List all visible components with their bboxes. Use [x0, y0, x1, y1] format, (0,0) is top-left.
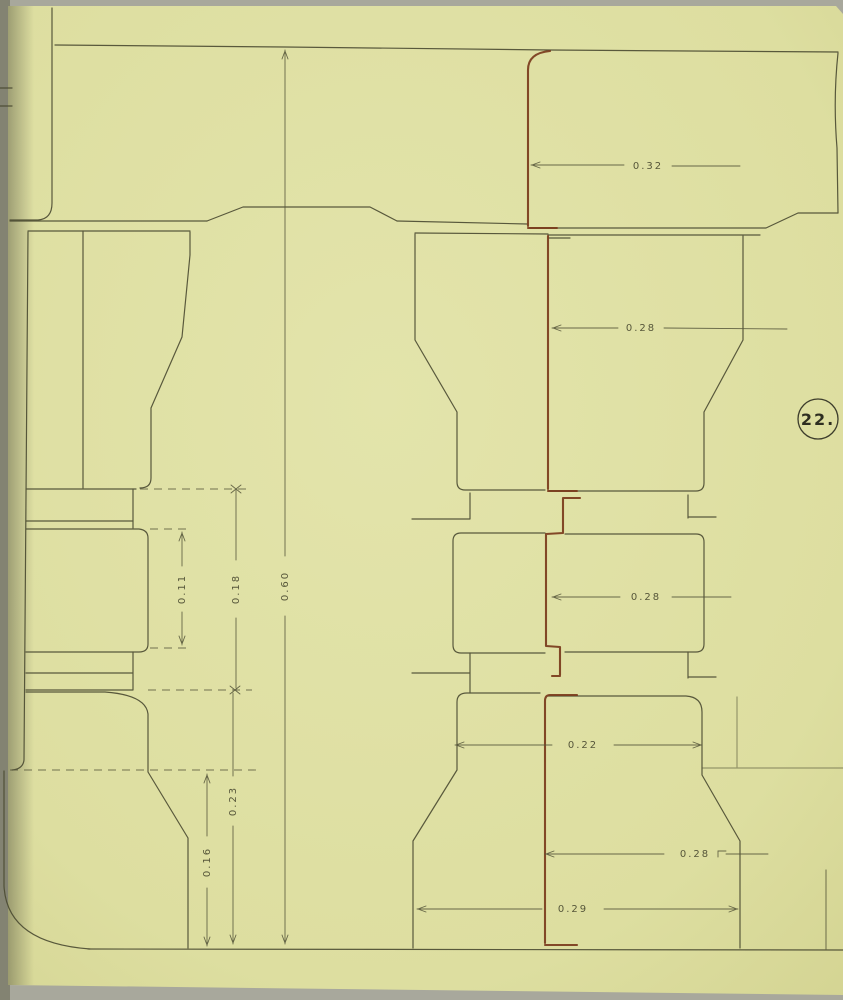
dim-label-joint-height: 0.18 — [231, 574, 242, 604]
dim-label-middle-width: 0.28 — [631, 592, 661, 603]
dim-label-upper-width: 0.28 — [626, 323, 656, 334]
engineering-drawing-canvas: 0.32 0.28 0.28 0.22 0.28 0.29 0.11 0.18 … — [0, 0, 843, 1000]
dim-label-base-height: 0.23 — [228, 786, 239, 816]
dim-label-foot-height: 0.16 — [202, 847, 213, 877]
dim-label-base-width: 0.29 — [558, 904, 588, 915]
dim-label-top-width: 0.32 — [633, 161, 663, 172]
plate-number-text: 22. — [801, 410, 835, 429]
dim-label-lower-width: 0.28 — [680, 849, 710, 860]
dim-label-inner-height: 0.11 — [177, 574, 188, 604]
dim-label-overall-height: 0.60 — [280, 571, 291, 601]
paper-edge-shadow — [8, 6, 34, 985]
dim-label-lower-neck-width: 0.22 — [568, 740, 598, 751]
drawing-sheet: 0.32 0.28 0.28 0.22 0.28 0.29 0.11 0.18 … — [0, 0, 843, 1000]
